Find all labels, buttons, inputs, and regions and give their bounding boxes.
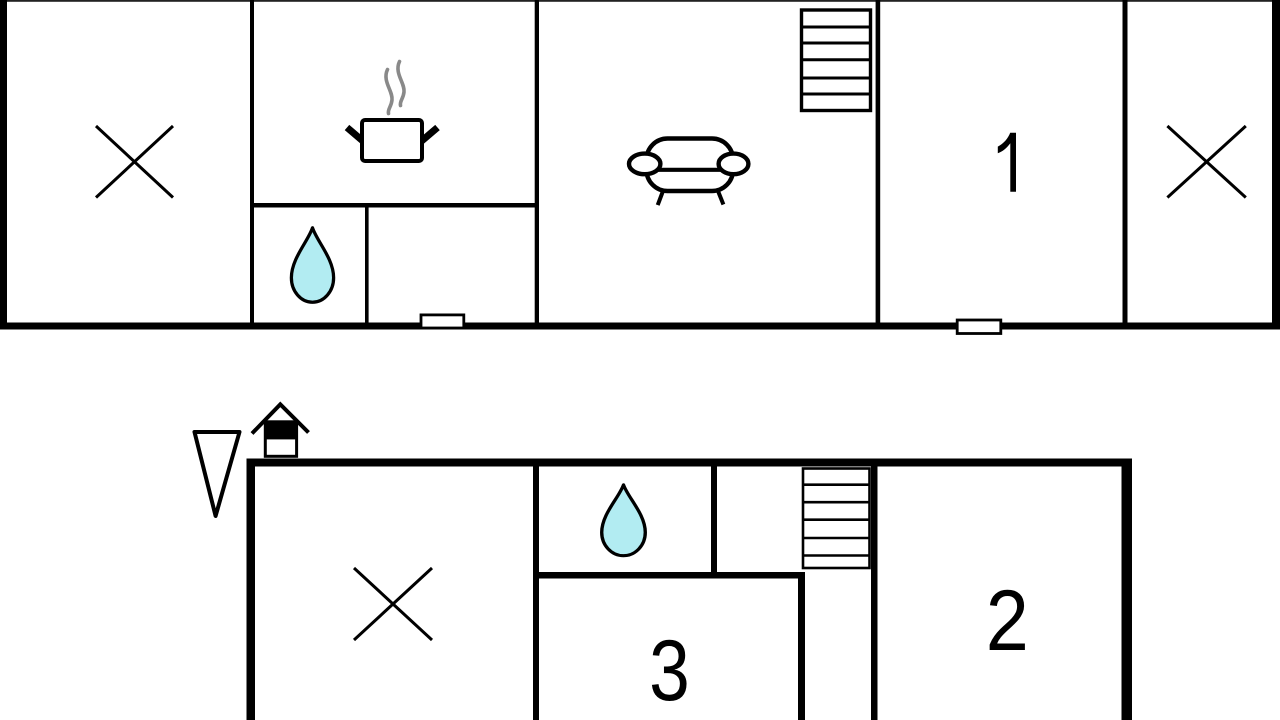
svg-text:2: 2 <box>986 573 1029 669</box>
svg-text:3: 3 <box>649 622 690 718</box>
